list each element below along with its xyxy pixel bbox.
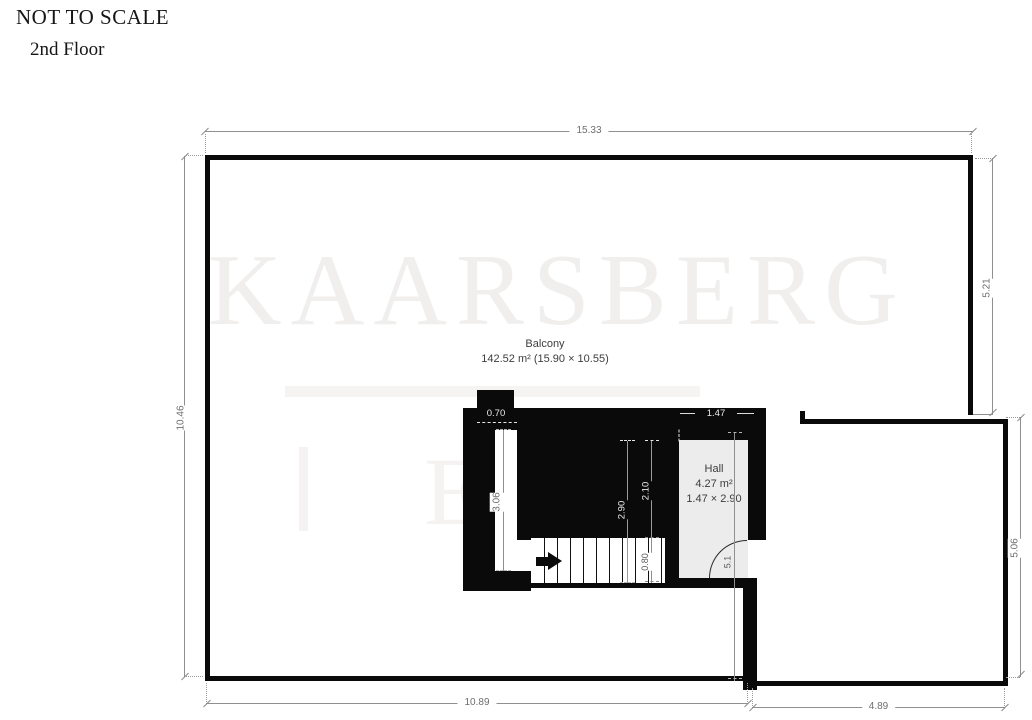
wall-right-upper (968, 155, 973, 415)
dim-right-upper-line: 5.21 (992, 158, 993, 415)
balcony-name: Balcony (425, 337, 665, 352)
stair-tread (596, 538, 597, 583)
dim-notch-value: 0.70 (479, 408, 513, 419)
balcony-room-label: Balcony 142.52 m² (15.90 × 10.55) (425, 337, 665, 367)
stair-tread (609, 538, 610, 583)
wall-step-horizontal (800, 419, 1008, 424)
dim-bottom-left-value: 10.89 (457, 697, 496, 709)
dim-top-value: 15.33 (569, 125, 608, 137)
dim-bottom-right-line: 4.89 (752, 707, 1005, 708)
dim-right-upper-value: 5.21 (980, 278, 996, 297)
wall-left (205, 155, 210, 681)
core-bottom-left-piece (463, 571, 531, 591)
wall-bottom-right (748, 681, 1008, 686)
wall-below-door (743, 578, 757, 690)
hall-size: 1.47 × 2.90 (666, 492, 762, 507)
dim-hall-width-line-right (737, 413, 754, 414)
dim-extension (747, 683, 748, 702)
dim-extension (752, 688, 753, 706)
dim-dash (728, 432, 742, 433)
dim-stair-run-value: 2.90 (614, 501, 630, 520)
not-to-scale-label: NOT TO SCALE (16, 5, 169, 30)
stair-tread (583, 538, 584, 583)
floorplan-page: NOT TO SCALE 2nd Floor KAARSBERG E Hall … (0, 0, 1032, 720)
balcony-area: 142.52 m² (15.90 × 10.55) (425, 352, 665, 367)
dim-dash (620, 440, 635, 441)
hall-room-label: Hall 4.27 m² 1.47 × 2.90 (666, 462, 762, 507)
dim-notch-dashline (477, 422, 517, 423)
wall-bottom-left (205, 676, 752, 681)
dim-left-value: 10.46 (174, 405, 190, 430)
stair-tread (570, 538, 571, 583)
dim-dash (496, 429, 511, 430)
dim-dash (620, 582, 635, 583)
dim-stair-width-line: 0.80 (651, 538, 652, 583)
stairs-direction-arrow-head-icon (548, 552, 562, 570)
dim-extension (971, 134, 972, 153)
dim-extension (975, 158, 991, 159)
watermark-fragment-bar (299, 447, 308, 531)
dim-hall-width-value: 1.47 (696, 408, 736, 419)
dim-stair-upper-line: 2.10 (651, 441, 652, 538)
core-notch (477, 390, 514, 410)
dim-hall-width-line-left (680, 413, 695, 414)
dim-extension (1006, 417, 1020, 418)
dim-tick (989, 409, 997, 417)
hall-bottom-wall (663, 578, 757, 588)
dim-extension (205, 134, 206, 153)
dim-left-line: 10.46 (184, 156, 185, 677)
hall-top-wall (679, 428, 748, 440)
dim-extension (206, 683, 207, 702)
floor-title: 2nd Floor (30, 39, 104, 61)
dim-right-lower-value: 5.06 (1008, 538, 1024, 557)
watermark-text: KAARSBERG (208, 232, 907, 349)
dim-extension (1006, 677, 1020, 678)
dim-hall-corner-dash (679, 430, 680, 442)
dim-hook (973, 414, 992, 415)
dim-dash (645, 581, 659, 582)
wall-top (205, 155, 973, 160)
wall-step-hook (800, 411, 805, 420)
dim-bottom-right-value: 4.89 (862, 701, 895, 713)
dim-tick (181, 153, 189, 161)
dim-dash (728, 678, 742, 679)
dim-stair-upper-value: 2.10 (638, 481, 654, 500)
hall-name: Hall (666, 462, 762, 477)
stair-tread (661, 538, 662, 583)
dim-top-line: 15.33 (205, 131, 973, 132)
dim-extension (1004, 688, 1005, 706)
dim-dash (496, 570, 511, 571)
hall-area: 4.27 m² (666, 477, 762, 492)
dim-dash (645, 537, 659, 538)
dim-stair-left-line: 3.06 (503, 430, 504, 571)
dim-bottom-left-line: 10.89 (206, 703, 748, 704)
dim-extension (186, 676, 203, 677)
dim-stair-run-line: 2.90 (627, 441, 628, 583)
dim-dash (645, 440, 659, 441)
dim-hall-depth-value: 5.1 (721, 554, 733, 571)
dim-stair-width-value: 0.80 (637, 553, 653, 571)
stair-tread (622, 538, 623, 583)
dim-stair-left-value: 3.06 (490, 492, 506, 511)
dim-extension (186, 155, 203, 156)
dim-right-lower-line: 5.06 (1020, 417, 1021, 677)
dim-hall-depth-line: 5.1 (734, 432, 735, 681)
